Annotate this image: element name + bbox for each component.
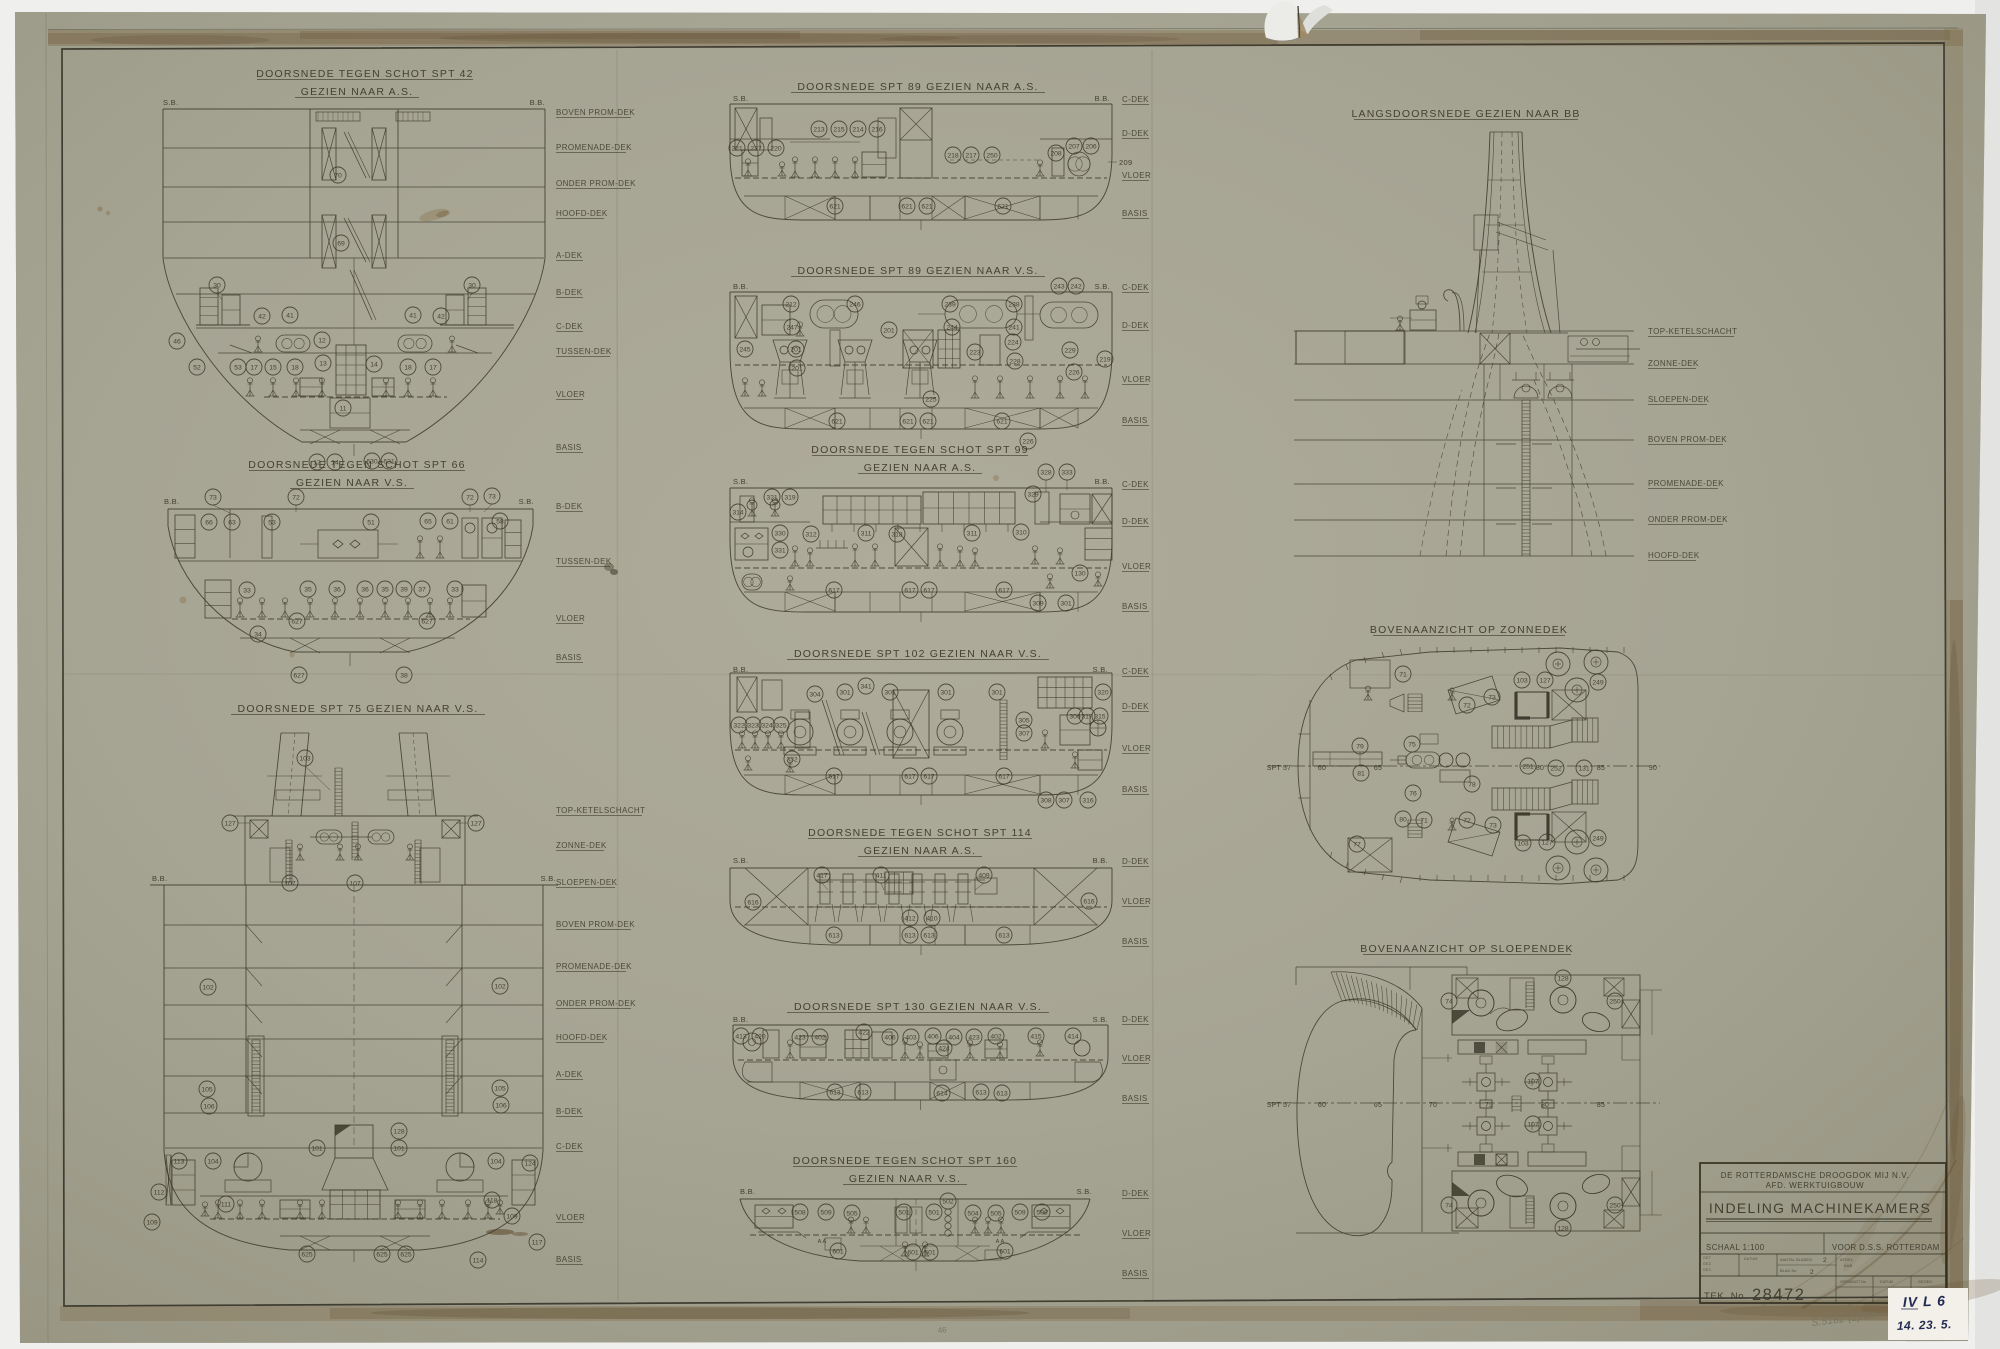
svg-text:2: 2	[1810, 1269, 1814, 1276]
svg-text:508: 508	[794, 1209, 806, 1216]
svg-text:206: 206	[1085, 143, 1097, 150]
svg-text:307: 307	[1018, 730, 1030, 737]
svg-text:30: 30	[468, 282, 476, 289]
svg-text:S.B.: S.B.	[519, 497, 534, 506]
svg-text:625: 625	[400, 1251, 412, 1258]
svg-text:251: 251	[1522, 763, 1534, 770]
svg-text:107: 107	[1527, 1078, 1539, 1085]
svg-text:614: 614	[936, 1090, 948, 1097]
svg-text:107: 107	[1527, 1121, 1539, 1128]
svg-text:C-DEK: C-DEK	[1122, 667, 1149, 676]
svg-text:118: 118	[487, 1197, 498, 1204]
svg-text:417: 417	[816, 872, 828, 879]
svg-text:ZONNE-DEK: ZONNE-DEK	[556, 841, 607, 850]
svg-text:S.B.: S.B.	[733, 856, 748, 865]
svg-text:106: 106	[203, 1103, 215, 1110]
svg-text:63: 63	[228, 519, 236, 526]
svg-text:A-DEK: A-DEK	[556, 251, 583, 260]
svg-text:BASIS: BASIS	[556, 443, 582, 452]
svg-text:80: 80	[1399, 816, 1407, 823]
svg-text:A-DEK: A-DEK	[556, 1070, 583, 1079]
svg-text:33: 33	[243, 587, 251, 594]
svg-text:621: 621	[902, 418, 914, 425]
svg-text:402: 402	[814, 1034, 826, 1041]
svg-text:PROMENADE-DEK: PROMENADE-DEK	[1648, 479, 1724, 488]
svg-text:201: 201	[790, 346, 802, 353]
svg-text:TOP-KETELSCHACHT: TOP-KETELSCHACHT	[1648, 327, 1737, 336]
svg-text:501: 501	[898, 1209, 910, 1216]
svg-text:33: 33	[451, 586, 459, 593]
svg-text:13: 13	[319, 360, 327, 367]
svg-text:621: 621	[922, 418, 934, 425]
svg-text:318: 318	[891, 531, 903, 538]
svg-text:304: 304	[809, 691, 821, 698]
svg-text:103: 103	[299, 755, 311, 762]
svg-text:617: 617	[904, 587, 916, 594]
svg-text:SCHAAL 1:100: SCHAAL 1:100	[1706, 1243, 1765, 1252]
svg-text:317: 317	[1081, 713, 1093, 720]
svg-text:34: 34	[254, 631, 262, 638]
svg-text:117: 117	[532, 1239, 543, 1246]
svg-text:103: 103	[1517, 840, 1529, 847]
svg-text:504: 504	[967, 1210, 979, 1217]
svg-text:35: 35	[381, 586, 389, 593]
svg-text:11: 11	[339, 405, 346, 412]
svg-text:301: 301	[839, 689, 851, 696]
svg-text:215: 215	[833, 126, 845, 133]
svg-text:41: 41	[409, 312, 417, 319]
svg-text:341: 341	[860, 683, 872, 690]
svg-text:308: 308	[1040, 797, 1052, 804]
svg-text:617: 617	[923, 587, 935, 594]
svg-text:37: 37	[418, 586, 426, 593]
svg-text:320: 320	[1097, 689, 1109, 696]
svg-text:DOORSNEDE SPT 89 GEZIEN NAAR V: DOORSNEDE SPT 89 GEZIEN NAAR V.S.	[798, 265, 1039, 277]
svg-text:72: 72	[466, 494, 474, 501]
svg-text:VLOER: VLOER	[1122, 562, 1151, 571]
svg-text:502: 502	[942, 1198, 954, 1205]
svg-text:GEZIEN NAAR V.S.: GEZIEN NAAR V.S.	[849, 1173, 961, 1185]
svg-text:15: 15	[269, 364, 277, 371]
svg-text:105: 105	[201, 1086, 213, 1093]
svg-text:S.B.: S.B.	[1095, 282, 1110, 291]
svg-text:212: 212	[785, 301, 797, 308]
svg-text:AANTAL BLADEN: AANTAL BLADEN	[1780, 1258, 1812, 1262]
svg-text:72: 72	[1463, 702, 1471, 709]
svg-text:214: 214	[852, 126, 864, 133]
svg-text:39: 39	[400, 586, 408, 593]
svg-text:74: 74	[1445, 1202, 1453, 1209]
svg-text:130: 130	[1074, 570, 1086, 577]
svg-text:AFD. WERKTUIGBOUW: AFD. WERKTUIGBOUW	[1766, 1181, 1865, 1190]
svg-text:DOORSNEDE TEGEN SCHOT SPT 42: DOORSNEDE TEGEN SCHOT SPT 42	[256, 68, 473, 80]
svg-text:DOORSNEDE TEGEN SCHOT SPT 160: DOORSNEDE TEGEN SCHOT SPT 160	[793, 1155, 1017, 1167]
svg-text:TUSSEN-DEK: TUSSEN-DEK	[556, 557, 612, 566]
svg-text:249: 249	[1592, 679, 1604, 686]
svg-text:A&B: A&B	[1844, 1264, 1852, 1268]
svg-text:501: 501	[928, 1209, 940, 1216]
svg-text:226: 226	[1068, 369, 1080, 376]
svg-text:D-DEK: D-DEK	[1122, 1189, 1149, 1198]
svg-text:613: 613	[923, 932, 935, 939]
svg-text:601: 601	[999, 1248, 1011, 1255]
svg-text:DATUM: DATUM	[1744, 1257, 1758, 1261]
svg-text:TEK. No.: TEK. No.	[1704, 1291, 1747, 1302]
svg-text:BOVEN PROM-DEK: BOVEN PROM-DEK	[1648, 435, 1727, 444]
svg-text:28472: 28472	[1752, 1286, 1805, 1304]
svg-text:104: 104	[490, 1158, 502, 1165]
svg-text:209: 209	[1119, 158, 1132, 167]
svg-text:406: 406	[927, 1033, 939, 1040]
svg-text:S.B.: S.B.	[541, 874, 556, 883]
svg-text:127: 127	[1539, 677, 1551, 684]
svg-text:319: 319	[784, 494, 796, 501]
svg-text:613: 613	[904, 932, 916, 939]
svg-text:HOOFD-DEK: HOOFD-DEK	[1648, 551, 1700, 560]
svg-text:GEZIEN: GEZIEN	[1918, 1280, 1932, 1284]
svg-text:B-DEK: B-DEK	[556, 502, 583, 511]
svg-text:411: 411	[876, 872, 887, 879]
svg-text:613: 613	[998, 932, 1010, 939]
svg-text:402: 402	[990, 1033, 1002, 1040]
svg-text:42: 42	[258, 313, 266, 320]
svg-text:D-DEK: D-DEK	[1122, 517, 1149, 526]
svg-text:GEZIEN NAAR A.S.: GEZIEN NAAR A.S.	[864, 845, 977, 857]
svg-text:S.B.: S.B.	[163, 98, 178, 107]
svg-text:PROMENADE-DEK: PROMENADE-DEK	[556, 962, 632, 971]
svg-text:GEZIEN NAAR A.S.: GEZIEN NAAR A.S.	[864, 462, 977, 474]
svg-text:BASIS: BASIS	[1122, 785, 1148, 794]
svg-text:422: 422	[858, 1029, 870, 1036]
svg-text:244: 244	[946, 324, 958, 331]
svg-text:B-DEK: B-DEK	[556, 288, 583, 297]
svg-text:46: 46	[173, 338, 181, 345]
svg-text:D-DEK: D-DEK	[1122, 129, 1149, 138]
svg-text:46: 46	[937, 1325, 947, 1335]
svg-text:241: 241	[1008, 324, 1020, 331]
svg-text:HOOFD-DEK: HOOFD-DEK	[556, 1033, 608, 1042]
svg-text:66: 66	[205, 519, 213, 526]
svg-text:DE ROTTERDAMSCHE DROOGDOK MI: DE ROTTERDAMSCHE DROOGDOK MIJ N.V.	[1721, 1171, 1910, 1180]
svg-text:207: 207	[1068, 143, 1080, 150]
svg-text:ONDER PROM-DEK: ONDER PROM-DEK	[556, 179, 636, 188]
svg-text:VERVANGT No: VERVANGT No	[1840, 1280, 1866, 1284]
svg-text:70: 70	[334, 172, 342, 179]
svg-text:81: 81	[1357, 770, 1365, 777]
svg-text:D-DEK: D-DEK	[1122, 857, 1149, 866]
svg-text:52: 52	[193, 364, 201, 371]
svg-text:SPT 57: SPT 57	[1267, 765, 1291, 772]
svg-text:223: 223	[969, 349, 981, 356]
svg-text:S.B.: S.B.	[733, 477, 748, 486]
svg-text:627: 627	[421, 618, 433, 625]
svg-text:613: 613	[857, 1089, 869, 1096]
svg-text:14. 23. 5.: 14. 23. 5.	[1897, 1317, 1953, 1333]
svg-text:2: 2	[1823, 1257, 1827, 1264]
svg-text:105: 105	[494, 1085, 506, 1092]
svg-text:414: 414	[1067, 1033, 1079, 1040]
svg-text:250: 250	[986, 152, 998, 159]
svg-text:109: 109	[146, 1219, 158, 1226]
svg-text:309: 309	[1032, 600, 1044, 607]
svg-text:D-DEK: D-DEK	[1122, 321, 1149, 330]
svg-text:38: 38	[400, 672, 408, 679]
svg-text:106: 106	[495, 1102, 507, 1109]
svg-text:65: 65	[1374, 1102, 1382, 1109]
svg-text:221: 221	[731, 145, 743, 152]
svg-text:HOOFD-DEK: HOOFD-DEK	[556, 209, 608, 218]
svg-text:218: 218	[947, 152, 959, 159]
svg-text:424: 424	[938, 1045, 950, 1052]
svg-text:SPT 57: SPT 57	[1267, 1102, 1291, 1109]
svg-text:617: 617	[923, 773, 935, 780]
svg-text:420: 420	[754, 1033, 766, 1040]
svg-text:625: 625	[376, 1251, 388, 1258]
svg-text:BOVENAANZICHT OP SLOEPENDEK: BOVENAANZICHT OP SLOEPENDEK	[1360, 943, 1573, 955]
svg-text:ONDER PROM-DEK: ONDER PROM-DEK	[1648, 515, 1728, 524]
svg-text:71: 71	[1399, 671, 1407, 678]
svg-text:73: 73	[209, 494, 217, 501]
svg-text:246: 246	[849, 301, 861, 308]
svg-text:DOORSNEDE TEGEN SCHOT SPT 99: DOORSNEDE TEGEN SCHOT SPT 99	[811, 444, 1028, 456]
svg-text:DOORSNEDE SPT 102 GEZIEN NAAR: DOORSNEDE SPT 102 GEZIEN NAAR V.S.	[794, 648, 1042, 660]
svg-text:617: 617	[828, 587, 840, 594]
svg-text:322: 322	[733, 722, 745, 729]
svg-text:GEC: GEC	[1703, 1268, 1712, 1272]
svg-text:69: 69	[337, 240, 345, 247]
svg-text:107: 107	[349, 880, 361, 887]
svg-text:VLOER: VLOER	[1122, 744, 1151, 753]
svg-text:325: 325	[775, 722, 787, 729]
svg-text:36: 36	[361, 586, 369, 593]
svg-text:B.B.: B.B.	[733, 1015, 748, 1024]
svg-text:79: 79	[1356, 743, 1364, 750]
svg-text:307: 307	[1058, 797, 1070, 804]
svg-text:C-DEK: C-DEK	[556, 1142, 583, 1151]
svg-text:242: 242	[1070, 283, 1082, 290]
svg-text:113: 113	[174, 1158, 185, 1165]
svg-text:85: 85	[1597, 1102, 1605, 1109]
svg-text:219: 219	[1099, 356, 1111, 363]
svg-text:617: 617	[828, 773, 840, 780]
svg-text:127: 127	[224, 820, 236, 827]
svg-text:53: 53	[268, 519, 276, 526]
svg-text:312: 312	[805, 531, 817, 538]
svg-text:228: 228	[1009, 358, 1021, 365]
svg-text:102: 102	[202, 984, 214, 991]
svg-text:D-DEK: D-DEK	[1122, 1015, 1149, 1024]
svg-text:18: 18	[291, 364, 299, 371]
svg-text:DOORSNEDE SPT 89 GEZIEN NAAR A: DOORSNEDE SPT 89 GEZIEN NAAR A.S.	[797, 81, 1038, 93]
svg-text:61: 61	[446, 518, 454, 525]
svg-text:311: 311	[967, 530, 978, 537]
svg-text:102: 102	[494, 983, 506, 990]
svg-text:B.B.: B.B.	[152, 874, 167, 883]
svg-text:243: 243	[1053, 283, 1065, 290]
svg-text:128: 128	[1557, 1225, 1569, 1232]
svg-text:14: 14	[370, 361, 378, 368]
svg-text:124: 124	[524, 1160, 536, 1167]
svg-text:GET: GET	[1703, 1256, 1712, 1260]
svg-text:613: 613	[996, 1090, 1008, 1097]
svg-text:DOORSNEDE TEGEN SCHOT SPT 114: DOORSNEDE TEGEN SCHOT SPT 114	[808, 827, 1032, 839]
svg-text:128: 128	[393, 1128, 405, 1135]
svg-text:505: 505	[990, 1210, 1002, 1217]
svg-text:35: 35	[304, 586, 312, 593]
svg-text:VLOER: VLOER	[556, 1213, 585, 1222]
svg-text:B.B.: B.B.	[164, 497, 179, 506]
svg-text:250: 250	[1609, 998, 1621, 1005]
svg-text:301: 301	[884, 689, 896, 696]
svg-text:423: 423	[794, 1034, 806, 1041]
svg-text:621: 621	[997, 203, 1009, 210]
svg-text:114: 114	[473, 1257, 484, 1264]
svg-text:101: 101	[393, 1145, 405, 1152]
svg-text:S.B.: S.B.	[1077, 1187, 1092, 1196]
svg-text:DOORSNEDE SPT 75 GEZIEN NAAR V: DOORSNEDE SPT 75 GEZIEN NAAR V.S.	[238, 703, 479, 715]
svg-text:314: 314	[732, 509, 744, 516]
svg-text:112: 112	[154, 1189, 165, 1196]
svg-text:BASIS: BASIS	[1122, 416, 1148, 425]
svg-text:627: 627	[293, 672, 305, 679]
svg-text:208: 208	[1050, 150, 1062, 157]
svg-text:404: 404	[948, 1034, 960, 1041]
svg-text:613: 613	[829, 1089, 841, 1096]
svg-text:VLOER: VLOER	[1122, 171, 1151, 180]
svg-text:621: 621	[831, 418, 843, 425]
svg-text:332: 332	[786, 756, 798, 763]
svg-text:627: 627	[291, 618, 303, 625]
svg-text:BASIS: BASIS	[556, 653, 582, 662]
svg-text:TUSSEN-DEK: TUSSEN-DEK	[556, 347, 612, 356]
svg-text:BASIS: BASIS	[1122, 937, 1148, 946]
svg-text:85: 85	[1597, 765, 1605, 772]
svg-text:310: 310	[1015, 529, 1027, 536]
svg-text:613: 613	[828, 932, 840, 939]
svg-text:621: 621	[901, 203, 913, 210]
svg-text:509: 509	[1014, 1209, 1026, 1216]
svg-text:A A: A A	[996, 1239, 1005, 1245]
svg-text:131: 131	[1578, 765, 1590, 772]
svg-text:329: 329	[1027, 491, 1039, 498]
svg-text:42: 42	[437, 313, 445, 320]
svg-text:601: 601	[907, 1249, 919, 1256]
svg-text:617: 617	[998, 773, 1010, 780]
svg-text:B.B.: B.B.	[1095, 94, 1110, 103]
svg-text:B.B.: B.B.	[1095, 477, 1110, 486]
svg-text:GEZ: GEZ	[1703, 1262, 1712, 1266]
svg-text:INDELING MACHINEKAMERS: INDELING MACHINEKAMERS	[1709, 1200, 1931, 1216]
svg-text:72: 72	[292, 494, 300, 501]
svg-text:ONDER PROM-DEK: ONDER PROM-DEK	[556, 999, 636, 1008]
svg-text:BASIS: BASIS	[1122, 209, 1148, 218]
svg-text:73: 73	[488, 493, 496, 500]
svg-text:213: 213	[813, 126, 825, 133]
svg-text:B-DEK: B-DEK	[556, 1107, 583, 1116]
svg-text:C-DEK: C-DEK	[1122, 480, 1149, 489]
svg-text:315: 315	[1094, 713, 1106, 720]
svg-text:B.B.: B.B.	[530, 98, 545, 107]
svg-text:VLOER: VLOER	[556, 614, 585, 623]
svg-text:DOORSNEDE SPT 130 GEZIEN NAAR: DOORSNEDE SPT 130 GEZIEN NAAR V.S.	[794, 1001, 1042, 1013]
svg-text:601: 601	[924, 1249, 936, 1256]
svg-text:403: 403	[905, 1034, 917, 1041]
svg-text:VLOER: VLOER	[1122, 1054, 1151, 1063]
svg-text:51: 51	[367, 519, 375, 526]
svg-text:311: 311	[861, 530, 872, 537]
svg-text:328: 328	[1040, 469, 1052, 476]
svg-text:A A: A A	[818, 1239, 827, 1245]
svg-text:VLOER: VLOER	[1122, 375, 1151, 384]
svg-text:LANGSDOORSNEDE GEZIEN NAAR BB: LANGSDOORSNEDE GEZIEN NAAR BB	[1351, 108, 1580, 120]
svg-text:IV L 6: IV L 6	[1903, 1293, 1947, 1310]
svg-text:71: 71	[1420, 817, 1428, 824]
svg-text:324: 324	[761, 722, 773, 729]
svg-text:PROMENADE-DEK: PROMENADE-DEK	[556, 143, 632, 152]
svg-text:613: 613	[975, 1089, 987, 1096]
svg-text:128: 128	[1557, 975, 1569, 982]
svg-text:90: 90	[1649, 765, 1657, 772]
svg-text:321: 321	[766, 494, 778, 501]
svg-text:S.B.: S.B.	[733, 94, 748, 103]
svg-text:227: 227	[750, 145, 762, 152]
svg-text:330: 330	[774, 530, 786, 537]
svg-text:225: 225	[925, 396, 937, 403]
svg-text:BLAD No: BLAD No	[1780, 1269, 1797, 1273]
svg-text:DATUM: DATUM	[1880, 1280, 1893, 1284]
svg-text:509: 509	[820, 1209, 832, 1216]
svg-text:616: 616	[1083, 898, 1095, 905]
svg-text:B.B.: B.B.	[733, 282, 748, 291]
svg-text:36: 36	[333, 586, 341, 593]
svg-text:301: 301	[1060, 600, 1072, 607]
svg-text:VLOER: VLOER	[556, 390, 585, 399]
svg-text:413: 413	[735, 1033, 747, 1040]
svg-text:B.B.: B.B.	[1093, 856, 1108, 865]
svg-text:238: 238	[1008, 301, 1020, 308]
svg-text:331: 331	[774, 547, 786, 554]
svg-text:107: 107	[284, 880, 296, 887]
svg-text:73: 73	[1488, 694, 1496, 701]
svg-text:74: 74	[1445, 998, 1453, 1005]
svg-text:323: 323	[747, 722, 759, 729]
svg-text:VOOR D.S.S. ROTTERDAM: VOOR D.S.S. ROTTERDAM	[1832, 1243, 1940, 1252]
svg-text:72: 72	[1463, 817, 1471, 824]
svg-text:BOVEN PROM-DEK: BOVEN PROM-DEK	[556, 108, 635, 117]
svg-text:224: 224	[1007, 339, 1019, 346]
svg-text:127: 127	[1541, 839, 1553, 846]
svg-text:65: 65	[424, 518, 432, 525]
svg-text:12: 12	[318, 337, 326, 344]
svg-text:17: 17	[250, 364, 258, 371]
svg-text:508: 508	[1036, 1209, 1048, 1216]
svg-text:249: 249	[1592, 835, 1604, 842]
svg-text:220: 220	[770, 145, 782, 152]
svg-text:245: 245	[739, 346, 751, 353]
svg-text:TOP-KETELSCHACHT: TOP-KETELSCHACHT	[556, 806, 645, 815]
svg-text:406: 406	[884, 1034, 896, 1041]
svg-text:252: 252	[1550, 765, 1562, 772]
svg-text:621: 621	[829, 203, 841, 210]
svg-text:316: 316	[1082, 797, 1094, 804]
svg-text:BASIS: BASIS	[1122, 1269, 1148, 1278]
svg-text:41: 41	[286, 312, 294, 319]
svg-text:80: 80	[1536, 765, 1544, 772]
svg-text:75: 75	[1408, 741, 1416, 748]
svg-text:410: 410	[926, 915, 938, 922]
svg-text:217: 217	[965, 152, 977, 159]
svg-text:201: 201	[791, 365, 803, 372]
